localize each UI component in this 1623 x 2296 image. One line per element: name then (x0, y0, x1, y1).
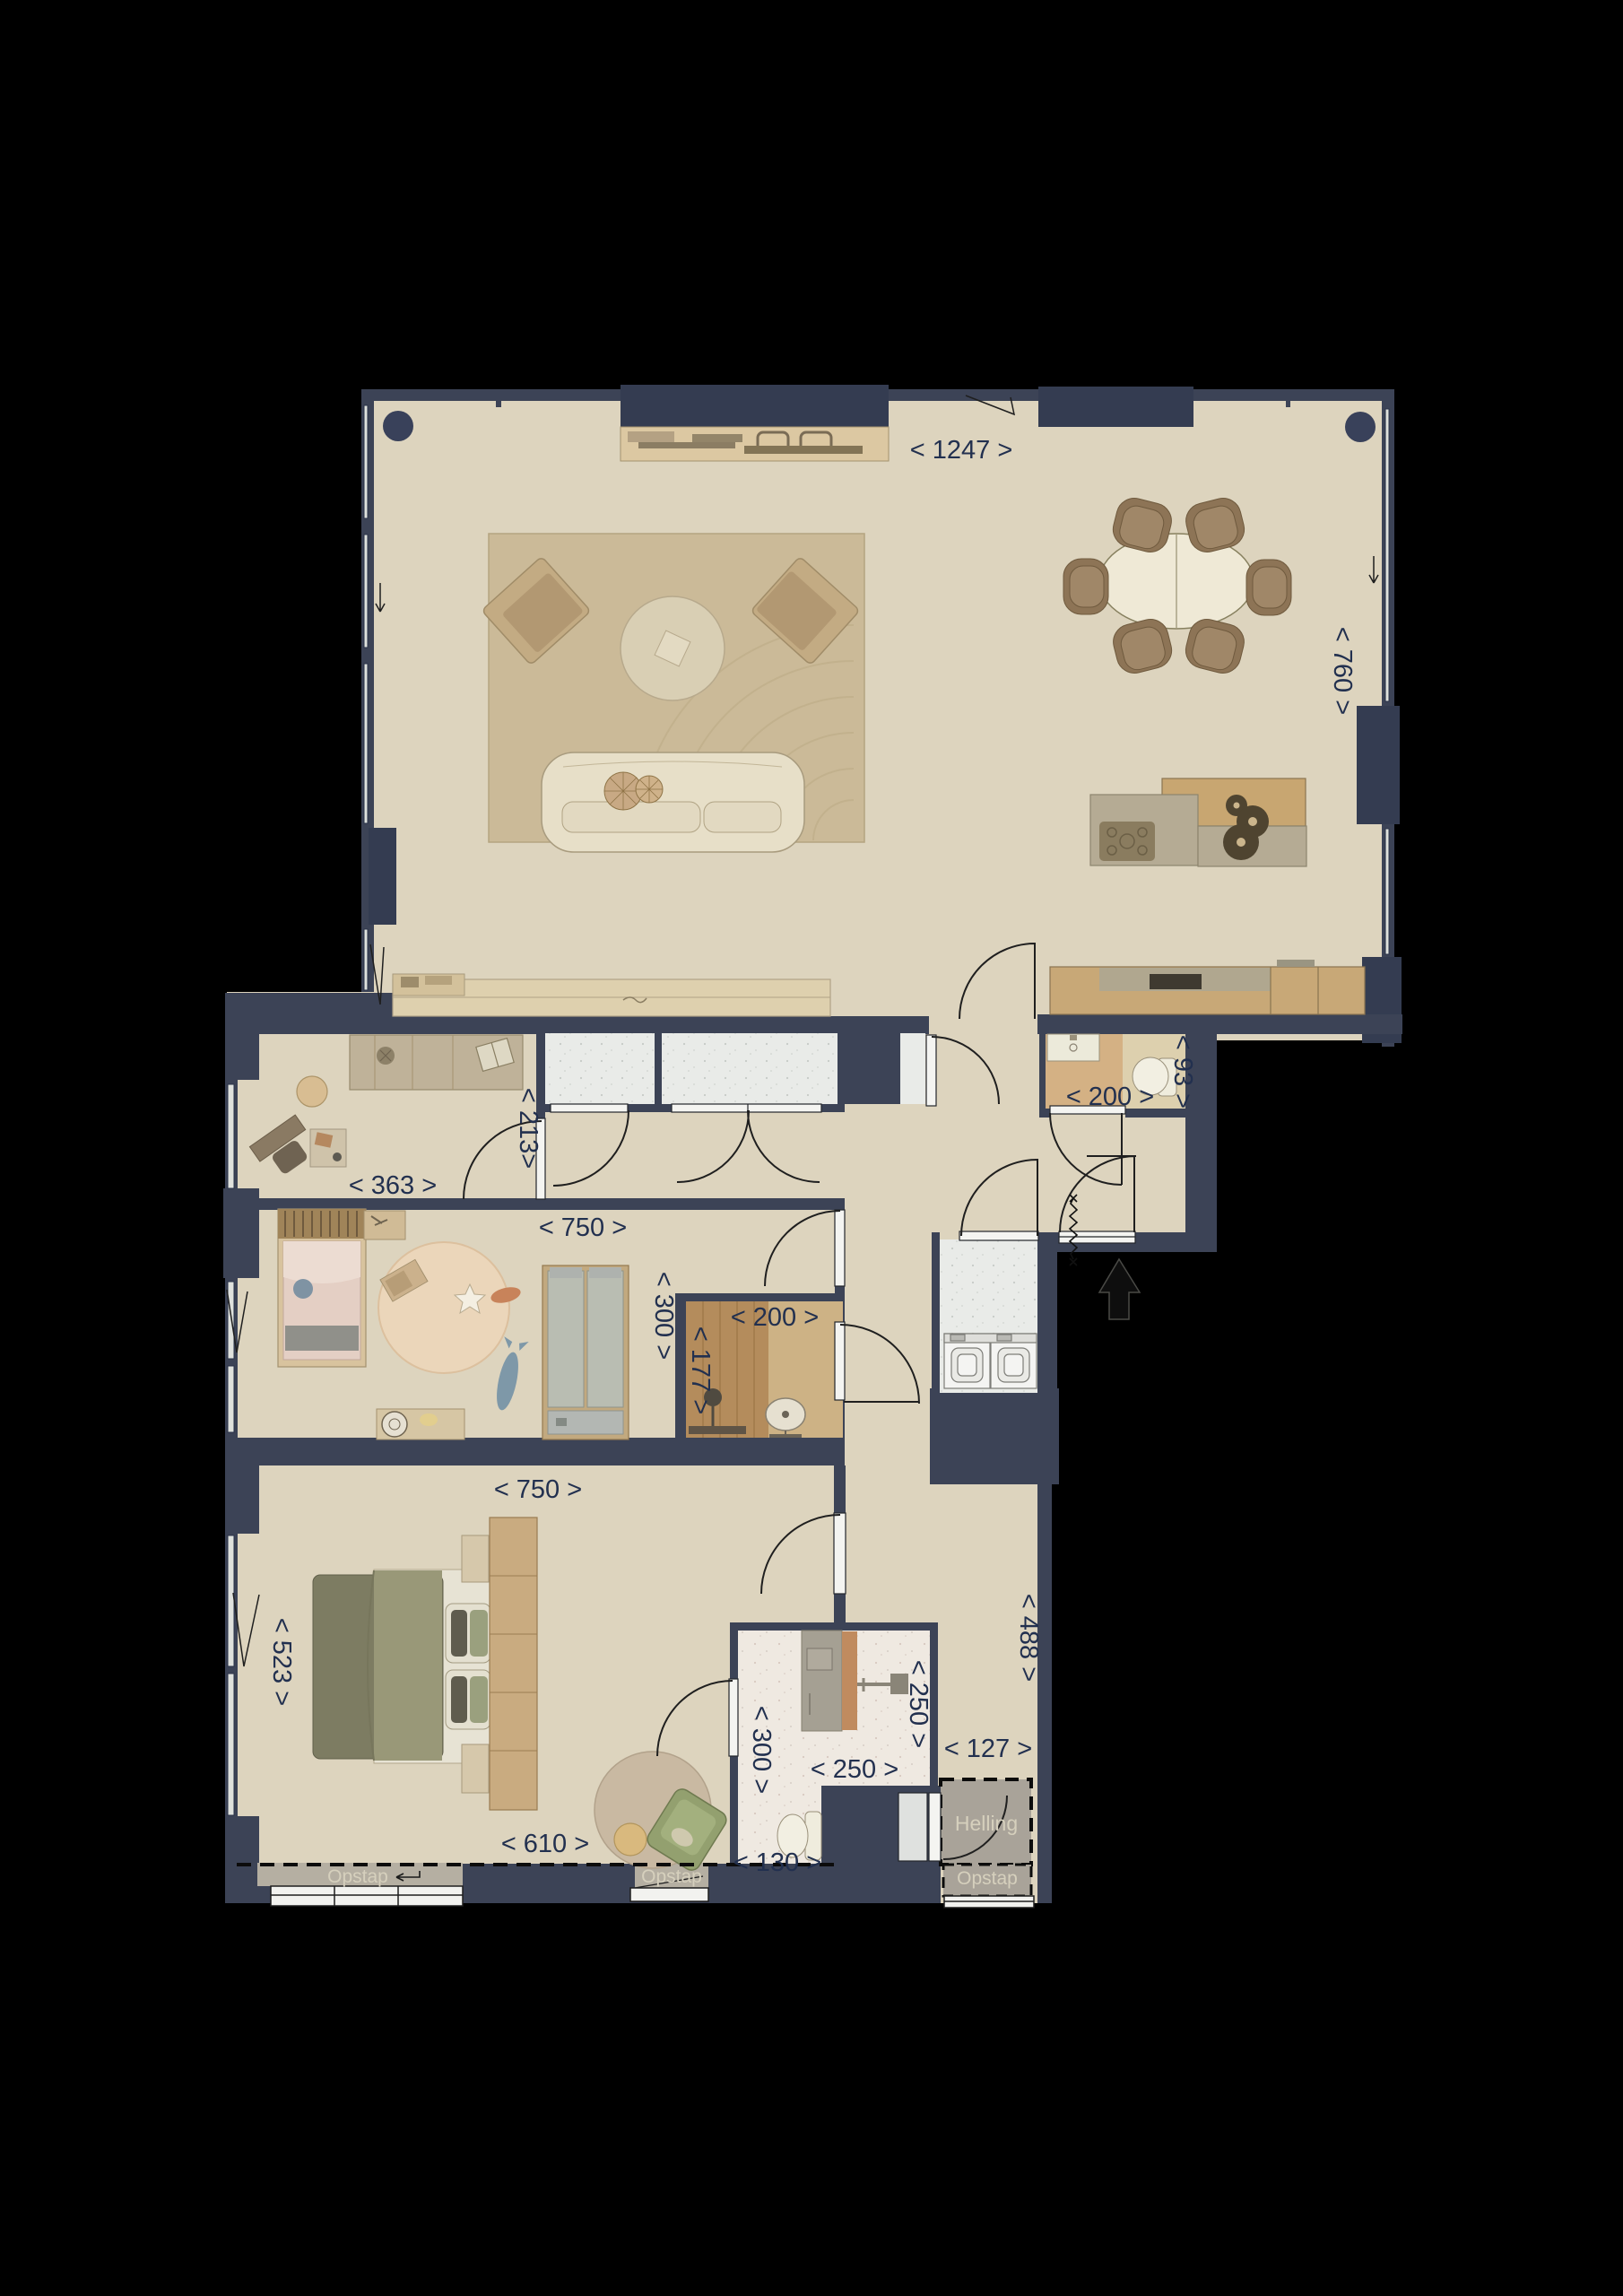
svg-text:< 750 >: < 750 > (494, 1475, 582, 1504)
svg-text:< 610 >: < 610 > (501, 1830, 589, 1858)
svg-text:< 363 >: < 363 > (349, 1171, 437, 1200)
svg-text:< 523 >: < 523 > (267, 1618, 296, 1706)
svg-text:< 127 >: < 127 > (944, 1735, 1032, 1763)
svg-text:Opstap: Opstap (641, 1866, 702, 1887)
svg-text:< 760 >: < 760 > (1328, 627, 1357, 715)
svg-text:< 177 >: < 177 > (686, 1326, 715, 1414)
svg-text:< 488 >: < 488 > (1014, 1594, 1043, 1682)
svg-text:< 1247 >: < 1247 > (910, 436, 1013, 465)
svg-text:< 213>: < 213> (514, 1088, 542, 1169)
svg-text:< 750 >: < 750 > (539, 1213, 627, 1242)
svg-text:< 93 >: < 93 > (1168, 1035, 1197, 1109)
svg-text:< 300 >: < 300 > (747, 1706, 776, 1794)
svg-text:< 300 >: < 300 > (649, 1272, 678, 1360)
svg-text:Opstap: Opstap (957, 1868, 1018, 1889)
svg-text:< 130 >: < 130 > (733, 1848, 821, 1877)
svg-text:< 250 >: < 250 > (904, 1660, 933, 1748)
svg-text:< 200 >: < 200 > (731, 1303, 819, 1332)
svg-text:< 200 >: < 200 > (1066, 1083, 1154, 1111)
svg-text:Helling: Helling (955, 1812, 1018, 1835)
svg-text:Opstap: Opstap (327, 1866, 388, 1887)
svg-text:< 250 >: < 250 > (811, 1755, 898, 1784)
